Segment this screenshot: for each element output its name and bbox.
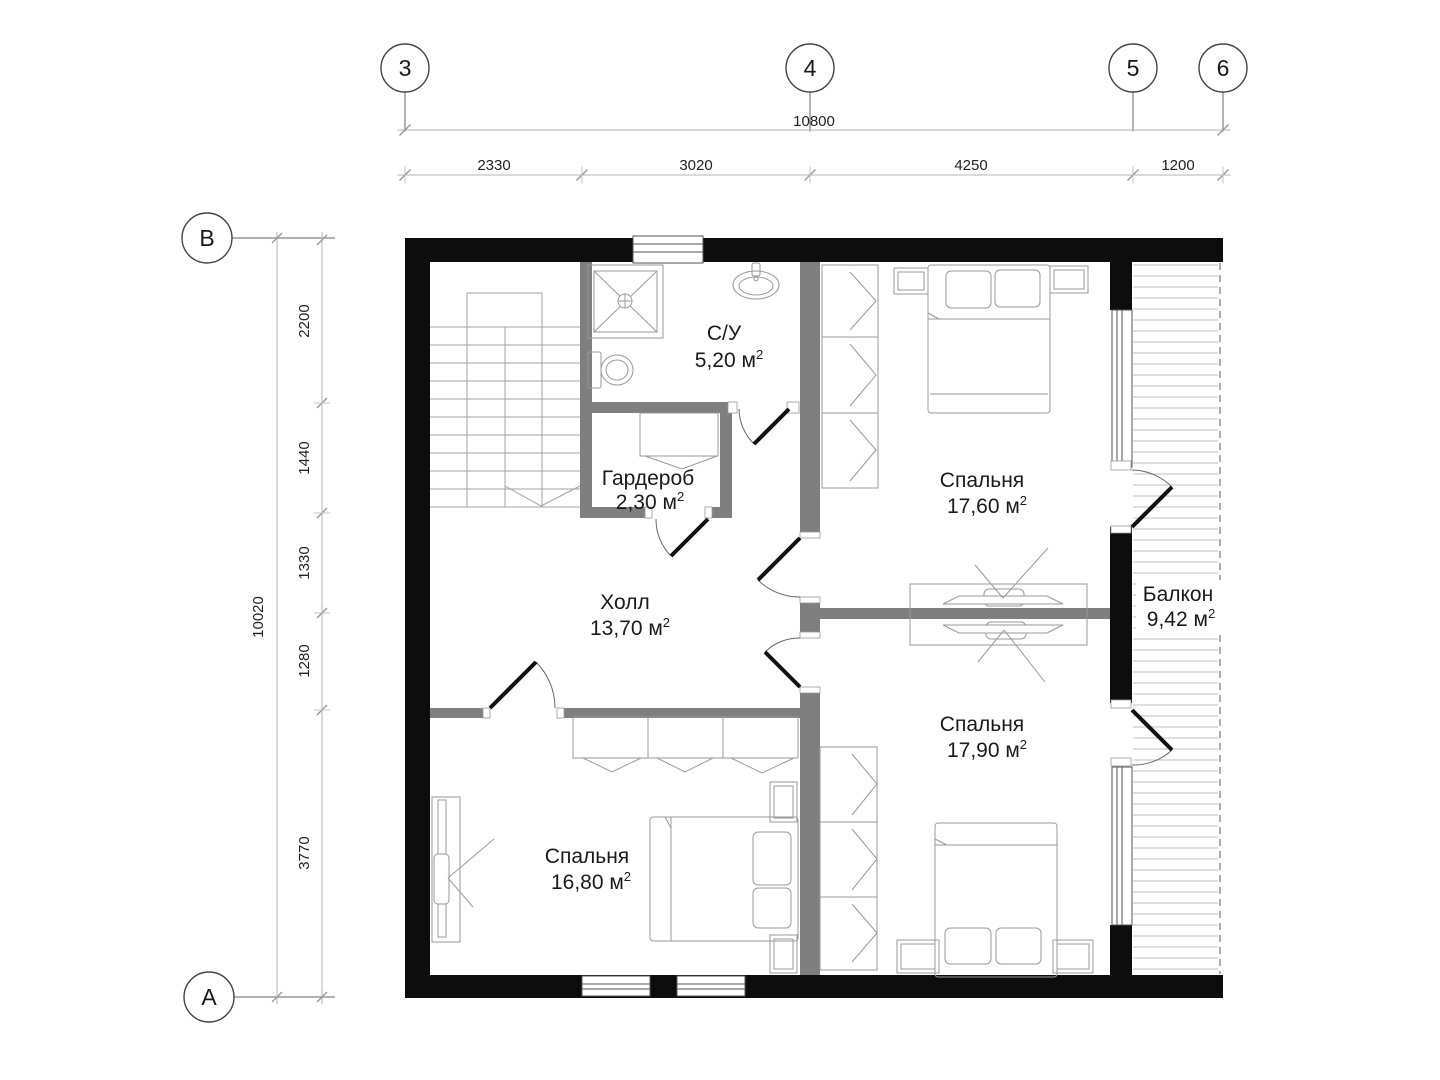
floor-plan: 10800 2330 3020 4250 1200 10020 2200 144… — [0, 0, 1440, 1080]
room-label-bedroom3: Спальня — [545, 845, 629, 868]
wall-exterior-bottom — [405, 975, 1223, 998]
door-bathroom — [739, 409, 789, 444]
room-area-wardrobe: 2,30 м2 — [616, 489, 684, 514]
window-right-bedroom2 — [1112, 767, 1132, 925]
door-bedroom2 — [765, 638, 800, 687]
door-bedroom3 — [490, 662, 555, 708]
dim-top-seg-1: 2330 — [477, 157, 510, 174]
door-bedroom1 — [758, 538, 800, 597]
wall-hall-east-b — [800, 603, 820, 632]
wall-bathroom-south — [580, 402, 728, 413]
wardrobe-bedroom2 — [820, 747, 877, 970]
wall-exterior-top — [405, 238, 1223, 262]
tv-bedroom3 — [432, 797, 494, 942]
dim-left-seg-5: 3770 — [296, 836, 313, 869]
dim-top-seg-4: 1200 — [1161, 157, 1194, 174]
axis-markers: 3 4 5 6 В А — [182, 44, 1247, 1022]
axis-label-B: В — [199, 225, 214, 251]
room-label-hall: Холл — [600, 591, 650, 614]
bed-bedroom2 — [935, 823, 1057, 977]
wall-bedrooms-divider-horizontal — [820, 608, 1110, 619]
bed-bedroom1 — [928, 265, 1050, 413]
axis-label-5: 5 — [1127, 55, 1140, 81]
wall-bedrooms-divider-vertical — [800, 693, 820, 975]
stairs — [430, 293, 580, 507]
window-top — [633, 236, 703, 263]
dim-top-seg-2: 3020 — [679, 157, 712, 174]
dim-top-total: 10800 — [793, 113, 835, 130]
wall-exterior-right-seg1 — [1110, 262, 1132, 310]
room-area-bedroom3: 16,80 м2 — [551, 869, 631, 894]
room-label-wardrobe: Гардероб — [602, 467, 694, 490]
wardrobe-bedroom1 — [822, 265, 878, 488]
room-label-bathroom: С/У — [707, 322, 742, 345]
dimensions-top: 10800 2330 3020 4250 1200 — [398, 92, 1230, 183]
shower-icon — [588, 265, 663, 338]
wall-wardrobe-east — [720, 413, 732, 518]
dim-left-total: 10020 — [250, 596, 267, 638]
bed-bedroom3 — [650, 817, 798, 941]
wardrobe-bedroom3 — [573, 717, 798, 773]
door-wardrobe — [656, 519, 708, 556]
room-label-balcony: Балкон — [1143, 583, 1213, 606]
closet-wardrobe-room — [640, 413, 718, 469]
axis-label-3: 3 — [399, 55, 412, 81]
window-right-bedroom1 — [1112, 310, 1132, 467]
axis-label-4: 4 — [804, 55, 817, 81]
dim-left-seg-3: 1330 — [296, 546, 313, 579]
dim-left-seg-1: 2200 — [296, 304, 313, 337]
wall-exterior-right-seg2 — [1110, 527, 1132, 703]
dim-left-seg-2: 1440 — [296, 441, 313, 474]
window-bottom-right — [677, 976, 745, 996]
room-area-bedroom2: 17,90 м2 — [947, 737, 1027, 762]
room-area-bedroom1: 17,60 м2 — [947, 493, 1027, 518]
wall-exterior-left — [405, 238, 430, 998]
wall-stairs-east — [580, 262, 592, 518]
nightstand — [897, 940, 1093, 973]
dim-top-seg-3: 4250 — [954, 157, 987, 174]
wall-hall-east-a — [800, 240, 820, 532]
room-label-bedroom1: Спальня — [940, 469, 1024, 492]
wall-bedroom3-north-a — [430, 708, 483, 718]
axis-label-A: А — [201, 984, 217, 1010]
axis-label-6: 6 — [1217, 55, 1230, 81]
floor-plan-canvas: 10800 2330 3020 4250 1200 10020 2200 144… — [0, 0, 1440, 1080]
dimensions-left: 10020 2200 1440 1330 1280 3770 — [232, 232, 335, 1004]
dim-left-seg-4: 1280 — [296, 644, 313, 677]
room-area-balcony: 9,42 м2 — [1147, 606, 1215, 631]
window-bottom-left — [582, 976, 650, 996]
wall-exterior-right-seg3 — [1110, 925, 1132, 975]
room-label-bedroom2: Спальня — [940, 713, 1024, 736]
room-area-bathroom: 5,20 м2 — [695, 347, 763, 372]
toilet-icon — [588, 352, 633, 388]
room-area-hall: 13,70 м2 — [590, 615, 670, 640]
sink-icon — [733, 263, 779, 299]
furniture — [432, 263, 1093, 977]
